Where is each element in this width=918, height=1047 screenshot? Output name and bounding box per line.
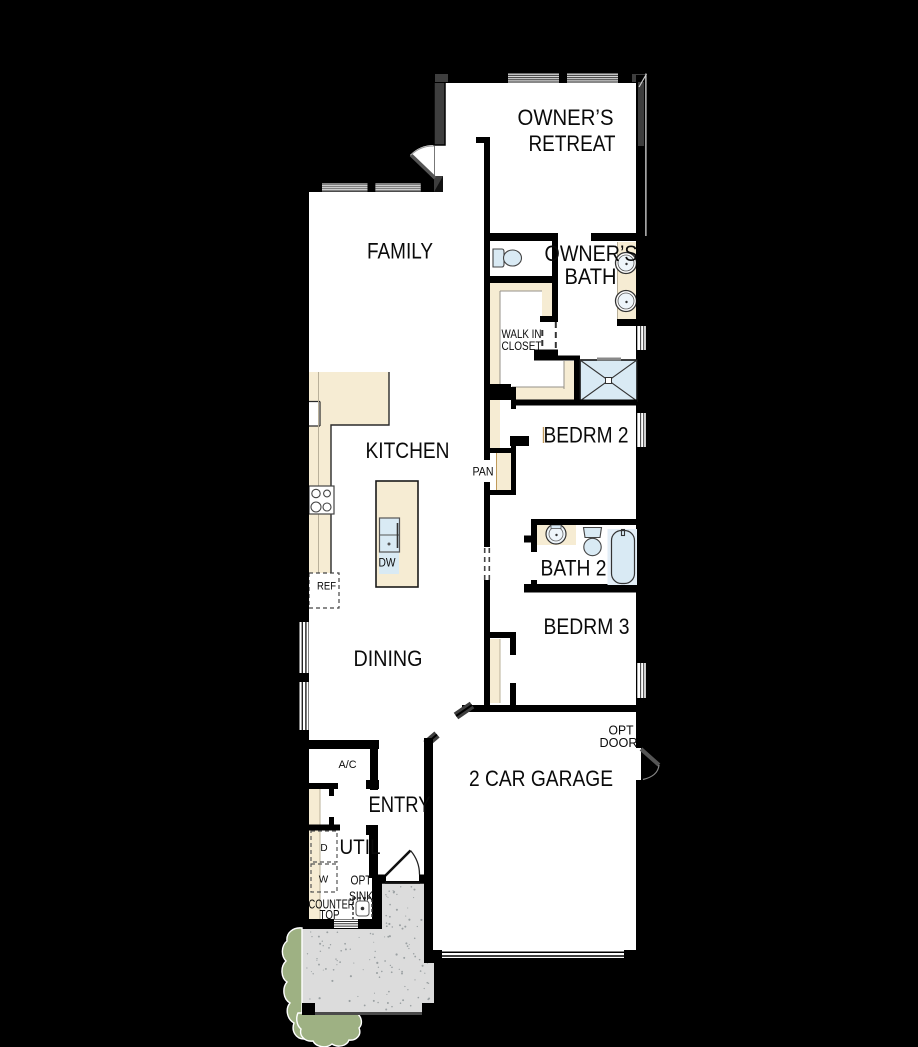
svg-text:REF: REF	[317, 581, 336, 593]
svg-text:OWNER’S: OWNER’S	[518, 105, 614, 130]
svg-text:CLOSET: CLOSET	[502, 341, 542, 353]
svg-text:BATH: BATH	[565, 264, 617, 289]
svg-text:OPT: OPT	[351, 874, 372, 888]
svg-text:BEDRM 3: BEDRM 3	[544, 614, 630, 639]
svg-text:BATH 2: BATH 2	[541, 556, 607, 581]
svg-text:ENTRY: ENTRY	[369, 792, 431, 817]
svg-text:WALK IN: WALK IN	[502, 329, 542, 341]
svg-text:KITCHEN: KITCHEN	[366, 438, 450, 463]
svg-text:FAMILY: FAMILY	[367, 239, 433, 264]
svg-text:OWNER’S: OWNER’S	[545, 241, 638, 266]
svg-text:A/C: A/C	[339, 759, 357, 771]
svg-text:BEDRM 2: BEDRM 2	[544, 423, 629, 448]
svg-text:DW: DW	[379, 558, 396, 570]
svg-text:W: W	[319, 875, 329, 886]
svg-text:D: D	[320, 843, 327, 854]
svg-text:TOP: TOP	[320, 908, 340, 922]
svg-text:RETREAT: RETREAT	[529, 131, 616, 156]
svg-text:PAN: PAN	[473, 465, 494, 479]
svg-text:DINING: DINING	[354, 646, 423, 671]
svg-text:UTIL: UTIL	[340, 836, 381, 859]
svg-text:2 CAR GARAGE: 2 CAR GARAGE	[469, 766, 613, 791]
svg-text:DOOR: DOOR	[600, 736, 638, 750]
